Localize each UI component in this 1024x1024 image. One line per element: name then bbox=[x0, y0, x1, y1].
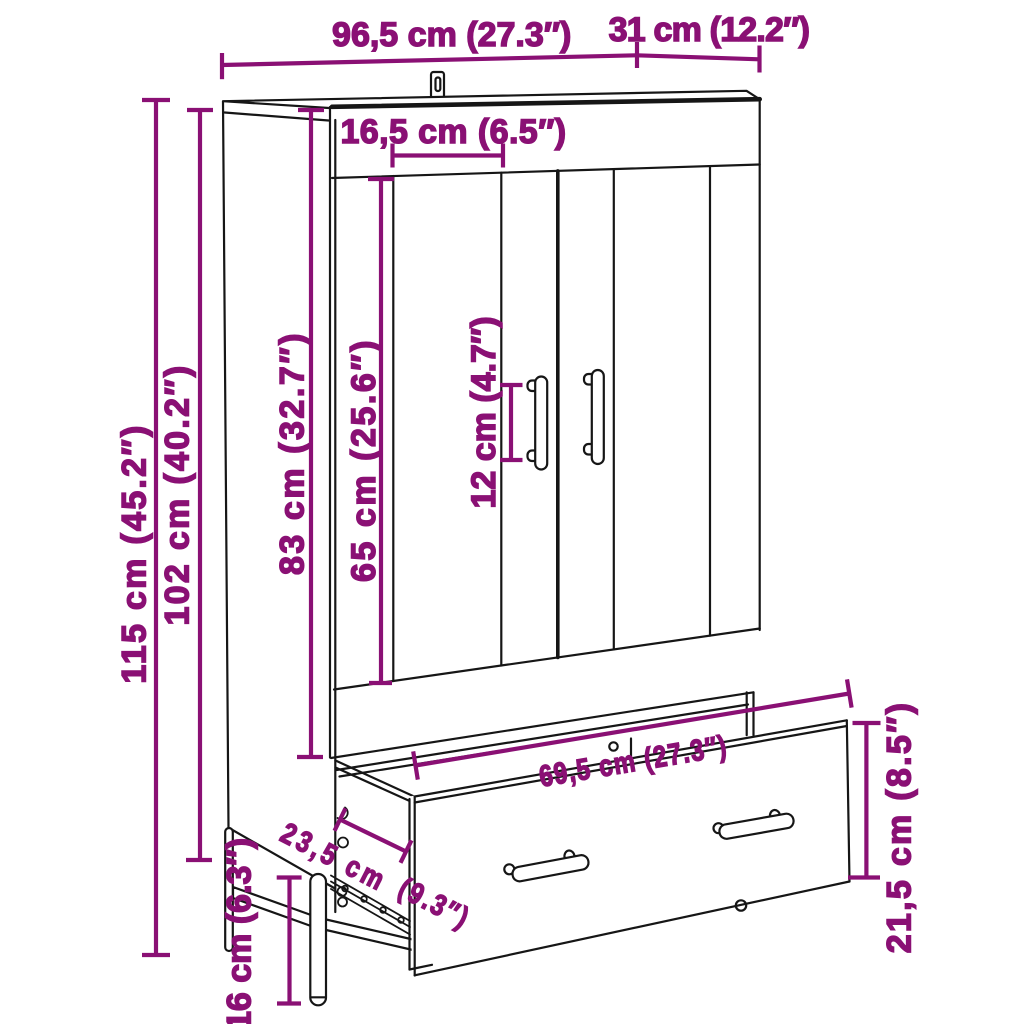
svg-text:31 cm (12.2″): 31 cm (12.2″) bbox=[609, 11, 810, 49]
svg-text:12 cm (4.7″): 12 cm (4.7″) bbox=[465, 316, 503, 508]
svg-text:65 cm (25.6″): 65 cm (25.6″) bbox=[345, 338, 383, 582]
svg-text:16,5 cm (6.5″): 16,5 cm (6.5″) bbox=[340, 113, 566, 151]
svg-text:21,5 cm (8.5″): 21,5 cm (8.5″) bbox=[881, 701, 919, 954]
svg-text:96,5 cm (27.3″): 96,5 cm (27.3″) bbox=[332, 16, 571, 54]
svg-text:83 cm (32.7″): 83 cm (32.7″) bbox=[274, 331, 312, 575]
svg-text:102 cm (40.2″): 102 cm (40.2″) bbox=[159, 363, 197, 625]
svg-text:16 cm (6.3″): 16 cm (6.3″) bbox=[221, 838, 259, 1024]
svg-text:115 cm (45.2″): 115 cm (45.2″) bbox=[116, 423, 154, 683]
